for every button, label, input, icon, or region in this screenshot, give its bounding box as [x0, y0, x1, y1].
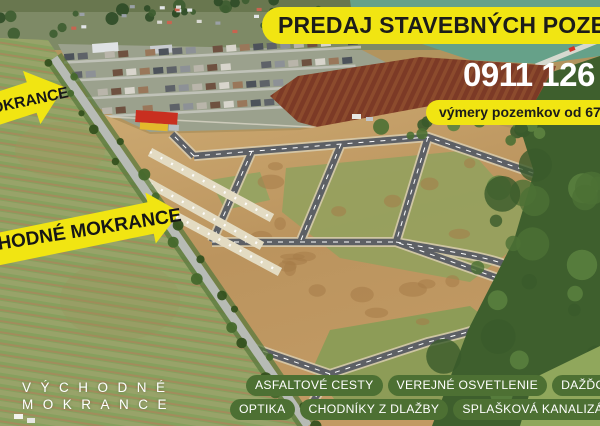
feature-pill-verejne-osvetlenie: VEREJNÉ OSVETLENIE [388, 375, 548, 396]
feature-pill-splaskova-kanalizacia: SPLAŠKOVÁ KANALIZÁCIA [453, 399, 600, 420]
vehicle [14, 414, 23, 419]
feature-pill-chodniky-z-dlazby: CHODNÍKY Z DLAŽBY [300, 399, 449, 420]
location-label: VÝCHODNÉ MOKRANCE [22, 380, 176, 413]
features-row-2: OPTIKA CHODNÍKY Z DLAŽBY SPLAŠKOVÁ KANAL… [230, 399, 600, 420]
feature-pill-asfaltove-cesty: ASFALTOVÉ CESTY [246, 375, 383, 396]
red-machinery [135, 110, 180, 132]
vehicle [27, 418, 35, 423]
location-line1: VÝCHODNÉ [22, 380, 176, 397]
plot-sizes-badge: výmery pozemkov od 671 m² [426, 100, 600, 125]
features-row-1: ASFALTOVÉ CESTY VEREJNÉ OSVETLENIE DAŽĎO… [246, 375, 600, 396]
vehicle [352, 114, 361, 119]
phone-number: 0911 126 [463, 56, 595, 94]
ad-poster: MOKRANCE VÝCHODNÉ MOKRANCE PREDAJ STAVEB… [0, 0, 600, 426]
feature-pill-optika: OPTIKA [230, 399, 295, 420]
field-patch [60, 260, 180, 340]
feature-pill-dazdova-kanalizacia: DAŽĎOVÁ KANALIZÁCIA [552, 375, 600, 396]
vehicle [366, 117, 373, 121]
title-banner: PREDAJ STAVEBNÝCH POZEMKOV [262, 7, 600, 44]
location-line2: MOKRANCE [22, 397, 176, 414]
